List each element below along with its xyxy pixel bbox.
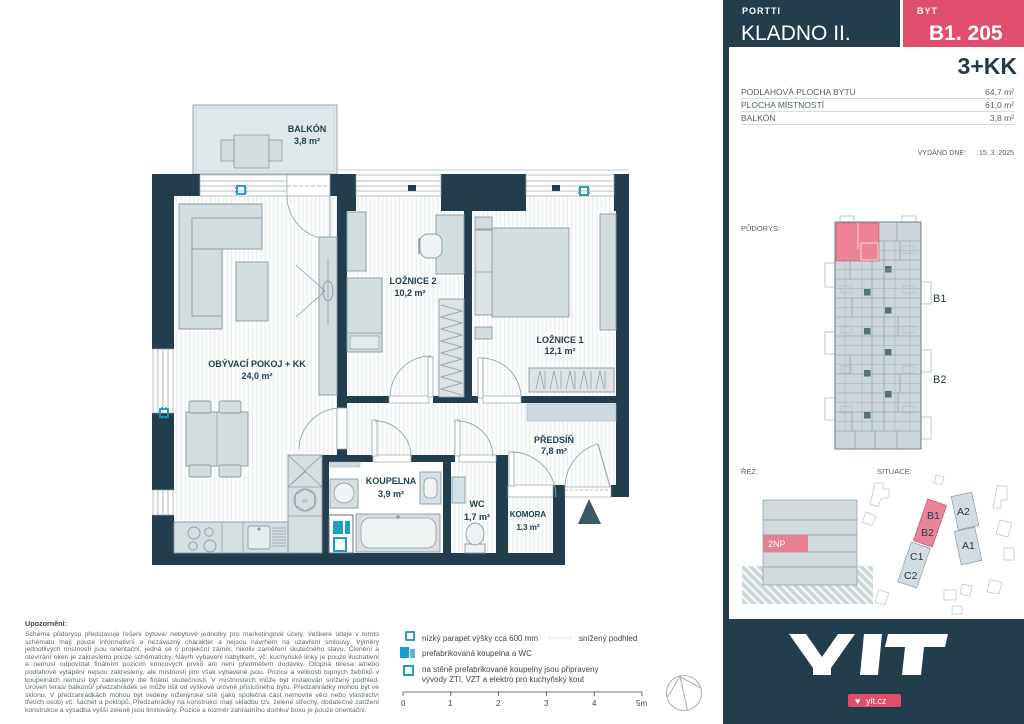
svg-text:KLADNO II.: KLADNO II. xyxy=(741,22,851,45)
svg-text:5m: 5m xyxy=(636,699,647,708)
svg-text:LOŽNICE 2: LOŽNICE 2 xyxy=(389,275,436,286)
svg-text:12,1 m²: 12,1 m² xyxy=(544,346,575,356)
svg-text:3+KK: 3+KK xyxy=(958,53,1018,79)
svg-text:B2: B2 xyxy=(921,527,934,539)
svg-text:A1: A1 xyxy=(962,540,975,552)
svg-text:A2: A2 xyxy=(957,506,970,518)
svg-text:PORTTI: PORTTI xyxy=(742,6,781,16)
svg-text:PODLAHOVÁ PLOCHA BYTU: PODLAHOVÁ PLOCHA BYTU xyxy=(741,87,856,97)
svg-text:PŮDORYS:: PŮDORYS: xyxy=(741,224,780,233)
svg-text:4: 4 xyxy=(592,699,597,708)
svg-text:1,7 m²: 1,7 m² xyxy=(464,512,490,522)
svg-text:1,3 m²: 1,3 m² xyxy=(516,523,539,532)
svg-text:B1: B1 xyxy=(933,293,946,305)
svg-text:PLOCHA MÍSTNOSTÍ: PLOCHA MÍSTNOSTÍ xyxy=(741,100,825,110)
svg-text:vývody ZTI, VZT a elektro pro: vývody ZTI, VZT a elektro pro kuchyňský … xyxy=(422,675,585,684)
svg-text:3,8 m²: 3,8 m² xyxy=(990,113,1014,123)
svg-text:7,8 m²: 7,8 m² xyxy=(541,446,567,456)
svg-text:3: 3 xyxy=(544,699,549,708)
svg-text:1: 1 xyxy=(448,699,453,708)
svg-text:BALKÓN: BALKÓN xyxy=(741,113,776,123)
svg-text:64,7 m²: 64,7 m² xyxy=(985,87,1014,97)
svg-text:KOUPELNA: KOUPELNA xyxy=(366,476,417,486)
svg-text:61,0 m²: 61,0 m² xyxy=(985,100,1014,110)
svg-text:2NP: 2NP xyxy=(768,539,786,549)
svg-text:prefabrikovaná koupelna a WC: prefabrikovaná koupelna a WC xyxy=(422,649,532,658)
svg-text:10,2 m²: 10,2 m² xyxy=(394,288,425,298)
svg-text:BALKÓN: BALKÓN xyxy=(288,123,327,134)
svg-text:C1: C1 xyxy=(910,551,924,563)
svg-text:BYT: BYT xyxy=(917,6,938,16)
svg-text:OBÝVACÍ POKOJ + KK: OBÝVACÍ POKOJ + KK xyxy=(208,358,306,369)
svg-text:0: 0 xyxy=(401,699,406,708)
svg-text:SITUACE:: SITUACE: xyxy=(877,467,912,476)
svg-text:yit.cz: yit.cz xyxy=(866,696,887,706)
svg-text:ŘEZ:: ŘEZ: xyxy=(741,467,758,476)
svg-text:snížený podhled: snížený podhled xyxy=(579,634,637,643)
svg-text:nízký parapet výšky cca 600 mm: nízký parapet výšky cca 600 mm xyxy=(422,634,538,643)
svg-text:WC: WC xyxy=(470,499,485,509)
svg-text:na stěně prefabrikované koupel: na stěně prefabrikované koupelny jsou př… xyxy=(422,665,599,674)
svg-text:3,8 m²: 3,8 m² xyxy=(294,136,320,146)
svg-text:2: 2 xyxy=(496,699,501,708)
svg-text:24,0 m²: 24,0 m² xyxy=(241,371,272,381)
svg-text:♥: ♥ xyxy=(855,696,860,706)
svg-text:15. 3. 2025: 15. 3. 2025 xyxy=(979,150,1014,157)
svg-text:KOMORA: KOMORA xyxy=(510,510,547,519)
svg-text:B2: B2 xyxy=(933,374,946,386)
svg-text:VYDÁNO DNE:: VYDÁNO DNE: xyxy=(918,148,966,157)
svg-text:B1: B1 xyxy=(927,510,940,522)
svg-text:LOŽNICE 1: LOŽNICE 1 xyxy=(536,334,583,345)
svg-text:3,9 m²: 3,9 m² xyxy=(378,489,404,499)
svg-text:m: m xyxy=(303,499,308,505)
svg-text:PŘEDSÍŇ: PŘEDSÍŇ xyxy=(534,434,574,445)
svg-text:B1. 205: B1. 205 xyxy=(929,22,1003,45)
svg-text:C2: C2 xyxy=(904,570,918,582)
